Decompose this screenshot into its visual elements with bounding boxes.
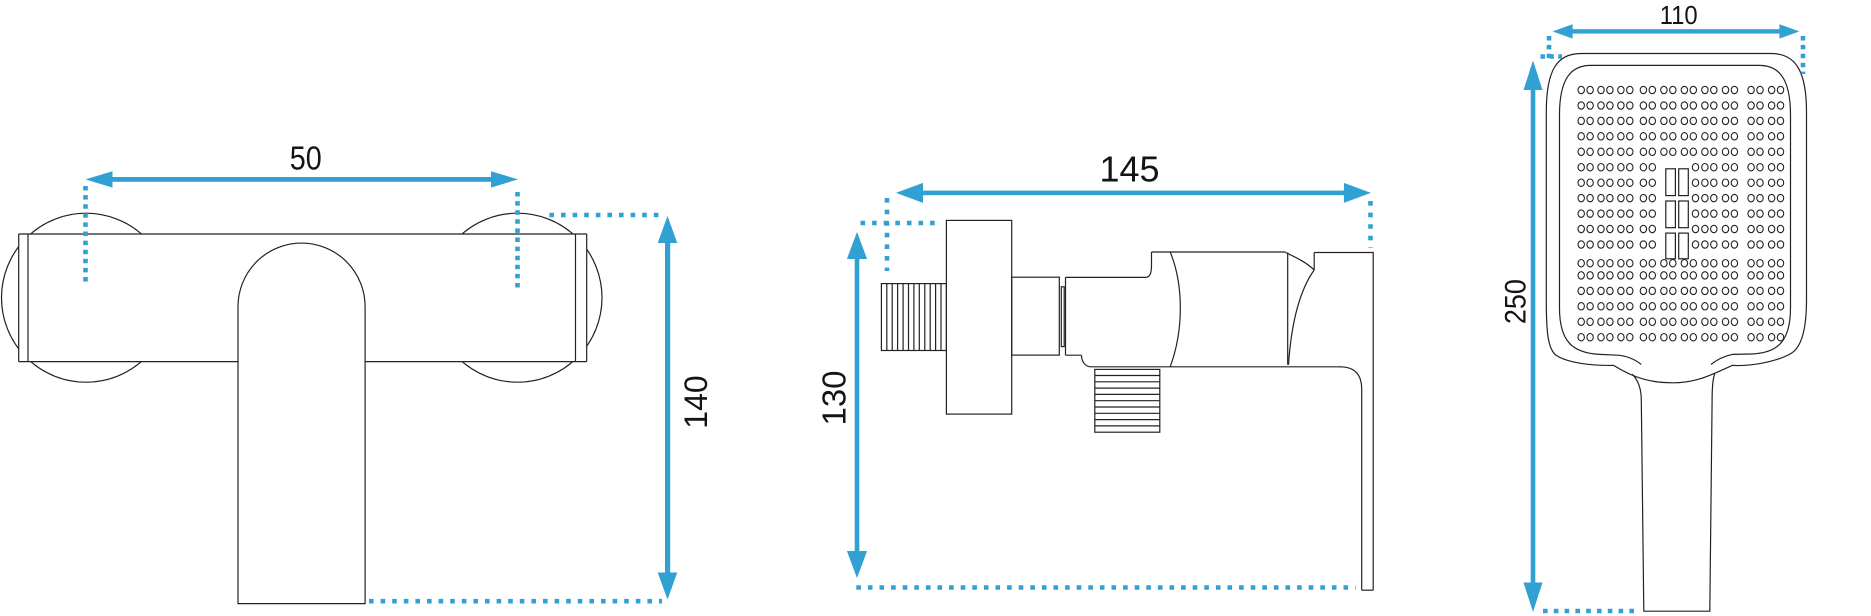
svg-text:50: 50	[290, 139, 322, 176]
svg-text:145: 145	[1099, 148, 1159, 189]
svg-text:130: 130	[816, 370, 853, 425]
svg-text:140: 140	[678, 375, 714, 428]
svg-text:110: 110	[1660, 0, 1698, 30]
svg-text:250: 250	[1500, 279, 1533, 324]
